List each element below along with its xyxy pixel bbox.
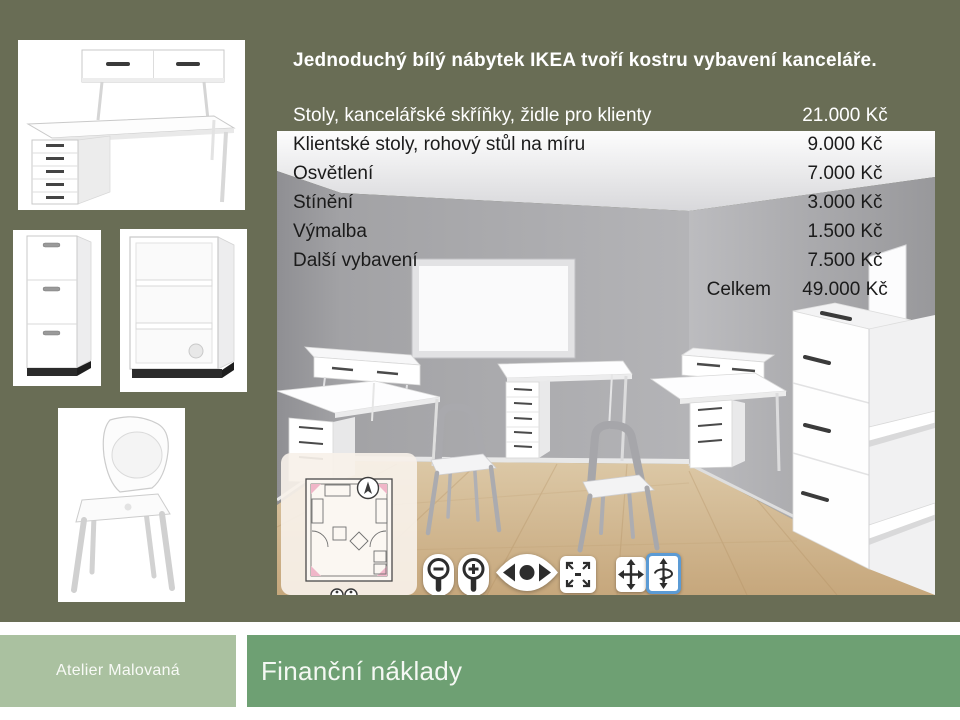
zoom-in-button[interactable]: [458, 554, 489, 595]
slide-title: Finanční náklady: [261, 656, 462, 687]
total-label: Celkem: [707, 275, 771, 304]
brand-box: Atelier Malovaná: [0, 635, 236, 707]
price-list: Stoly, kancelářské skříňky, židle pro kl…: [293, 101, 905, 304]
product-image-file-cabinet: [13, 230, 101, 386]
compass-icon: [358, 478, 379, 499]
total-row: Celkem 49.000 Kč: [293, 275, 905, 304]
zoom-out-button[interactable]: [423, 554, 454, 595]
price-value: 21.000 Kč: [785, 101, 905, 130]
price-label: Další vybavení: [293, 246, 418, 275]
intro-text: Jednoduchý bílý nábytek IKEA tvoří kostr…: [293, 50, 933, 72]
price-row: Osvětlení 7.000 Kč: [293, 159, 905, 188]
zoom-in-icon: [458, 554, 489, 595]
presentation-slide: Jednoduchý bílý nábytek IKEA tvoří kostr…: [0, 0, 960, 720]
price-row: Další vybavení 7.500 Kč: [293, 246, 905, 275]
zoom-out-icon: [423, 554, 454, 595]
price-value: 7.500 Kč: [785, 246, 905, 275]
price-row: Klientské stoly, rohový stůl na míru 9.0…: [293, 130, 905, 159]
price-label: Výmalba: [293, 217, 367, 246]
product-image-desk: [18, 40, 245, 210]
price-row: Stínění 3.000 Kč: [293, 188, 905, 217]
price-label: Osvětlení: [293, 159, 373, 188]
desk-illustration: [18, 40, 245, 210]
rotate-icon: [649, 556, 678, 591]
price-label: Stínění: [293, 188, 353, 217]
slide-title-box: Finanční náklady: [247, 635, 960, 707]
fullscreen-button[interactable]: [560, 556, 596, 593]
price-row: Výmalba 1.500 Kč: [293, 217, 905, 246]
look-around-icon: [494, 551, 560, 594]
price-value: 7.000 Kč: [785, 159, 905, 188]
move-icon: [616, 557, 646, 592]
brand-label: Atelier Malovaná: [56, 662, 180, 680]
shelf-unit-illustration: [120, 229, 247, 392]
file-cabinet-illustration: [13, 230, 101, 386]
price-label: Stoly, kancelářské skříňky, židle pro kl…: [293, 101, 651, 130]
price-row: Stoly, kancelářské skříňky, židle pro kl…: [293, 101, 905, 130]
price-value: 9.000 Kč: [785, 130, 905, 159]
product-image-shelf-unit: [120, 229, 247, 392]
total-value: 49.000 Kč: [785, 275, 905, 304]
move-button[interactable]: [616, 557, 646, 592]
look-around-button[interactable]: [494, 551, 560, 594]
price-label: Klientské stoly, rohový stůl na míru: [293, 130, 585, 159]
price-value: 1.500 Kč: [785, 217, 905, 246]
fullscreen-icon: [560, 556, 596, 593]
rotate-button[interactable]: [646, 553, 681, 594]
product-image-chair: [58, 408, 185, 602]
chair-illustration: [58, 408, 185, 602]
price-value: 3.000 Kč: [785, 188, 905, 217]
floorplan-minimap: [281, 453, 417, 595]
